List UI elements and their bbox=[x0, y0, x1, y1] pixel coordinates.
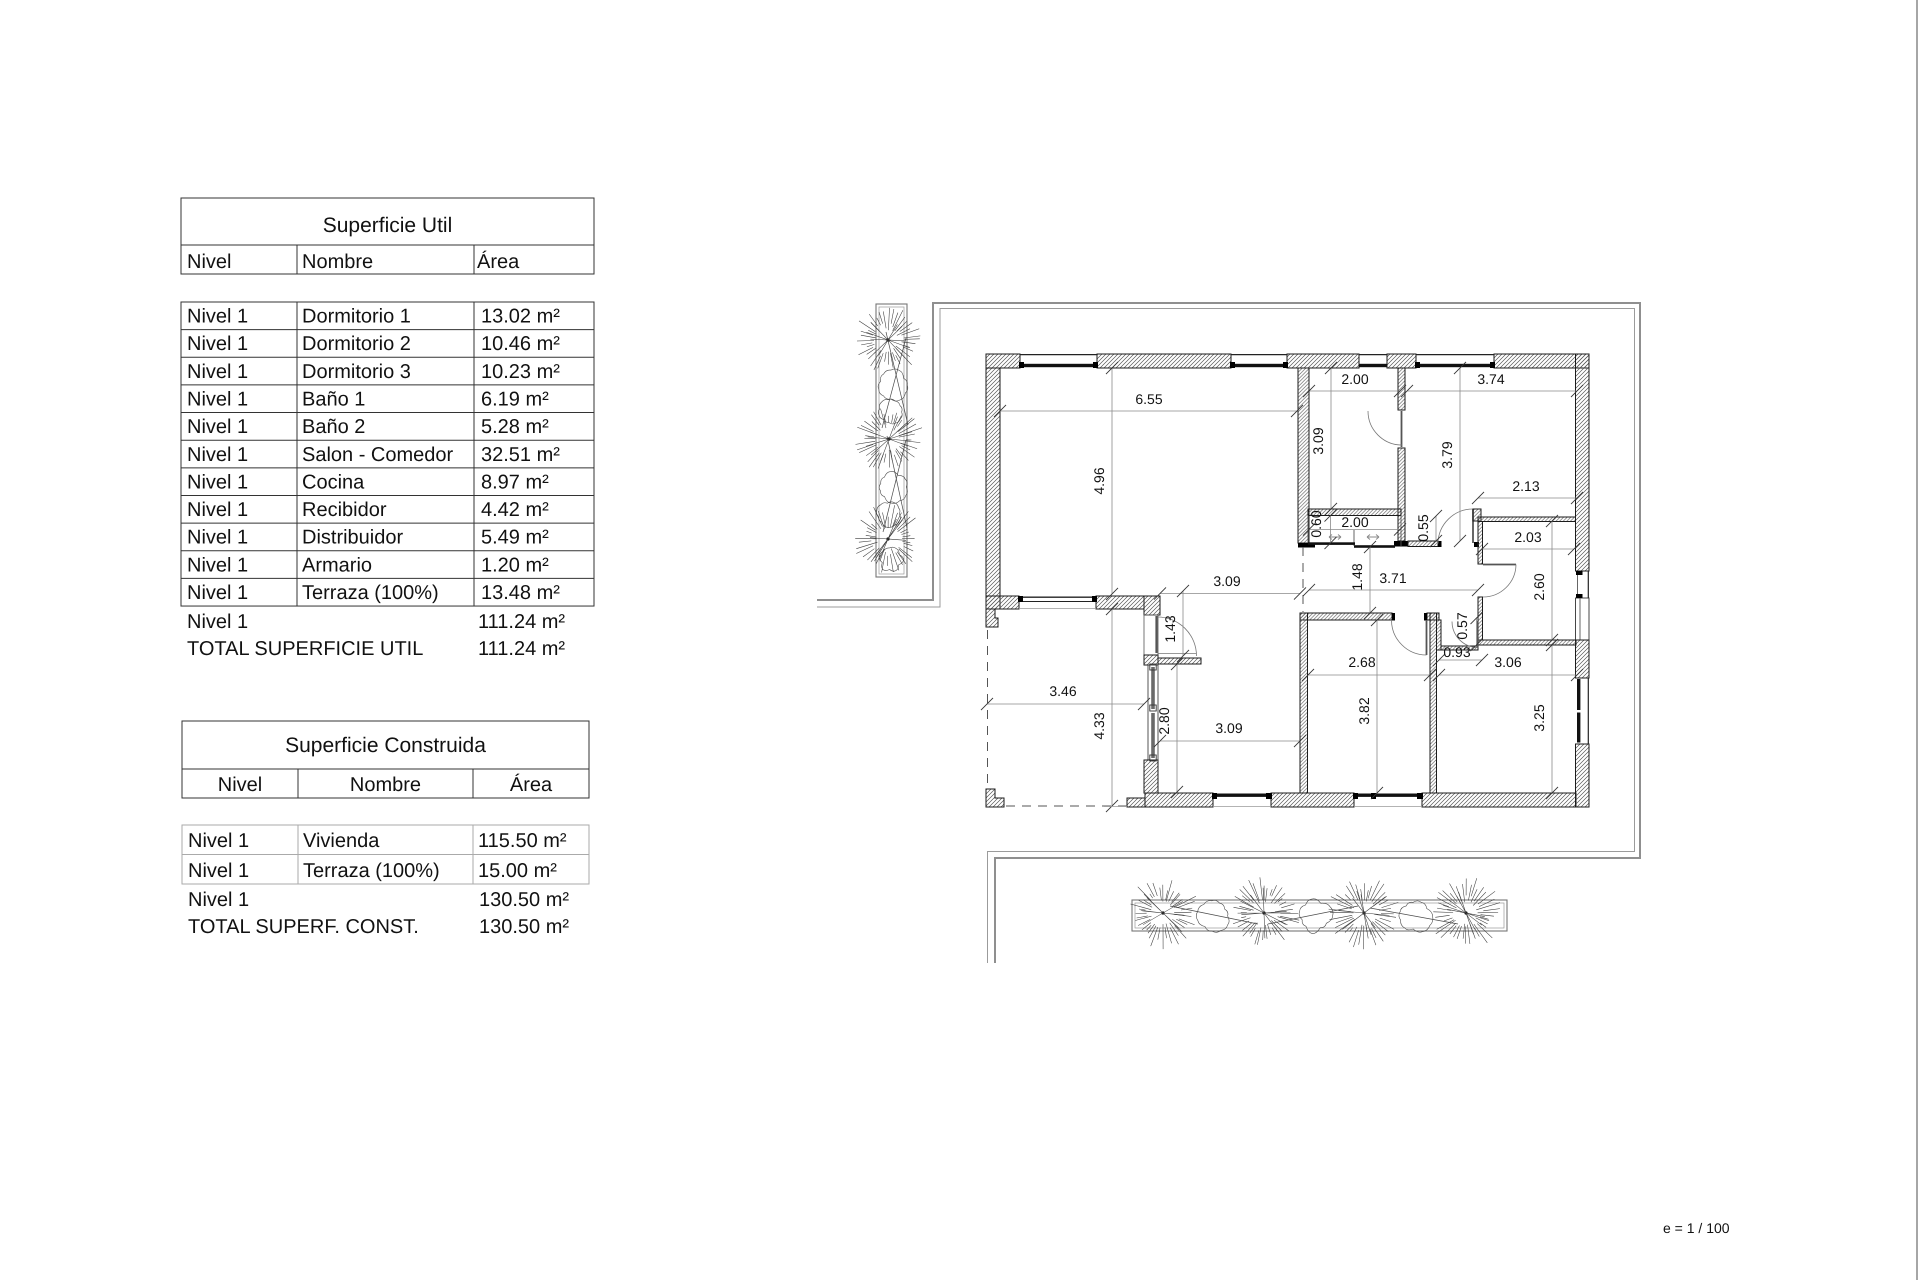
svg-text:Dormitorio 3: Dormitorio 3 bbox=[302, 361, 411, 383]
svg-text:32.51 m²: 32.51 m² bbox=[481, 444, 560, 466]
svg-text:Nivel 1: Nivel 1 bbox=[187, 471, 248, 493]
svg-text:5.49 m²: 5.49 m² bbox=[481, 527, 549, 549]
svg-text:e = 1 / 100: e = 1 / 100 bbox=[1663, 1220, 1730, 1236]
svg-text:2.80: 2.80 bbox=[1156, 707, 1172, 734]
svg-text:6.55: 6.55 bbox=[1135, 391, 1162, 407]
svg-text:3.46: 3.46 bbox=[1049, 683, 1076, 699]
svg-text:0.57: 0.57 bbox=[1454, 612, 1470, 639]
svg-text:2.68: 2.68 bbox=[1348, 654, 1375, 670]
svg-text:Nivel 1: Nivel 1 bbox=[187, 499, 248, 521]
svg-text:Nivel 1: Nivel 1 bbox=[187, 527, 248, 549]
svg-text:Dormitorio 1: Dormitorio 1 bbox=[302, 306, 411, 328]
svg-text:13.02 m²: 13.02 m² bbox=[481, 306, 560, 328]
svg-text:Baño 1: Baño 1 bbox=[302, 389, 365, 411]
svg-text:3.09: 3.09 bbox=[1215, 720, 1242, 736]
svg-text:Nivel 1: Nivel 1 bbox=[187, 416, 248, 438]
svg-text:2.60: 2.60 bbox=[1531, 573, 1547, 600]
svg-text:Nivel 1: Nivel 1 bbox=[188, 860, 249, 882]
svg-text:3.79: 3.79 bbox=[1439, 441, 1455, 468]
svg-text:2.13: 2.13 bbox=[1512, 478, 1539, 494]
svg-text:10.23 m²: 10.23 m² bbox=[481, 361, 560, 383]
svg-text:8.97 m²: 8.97 m² bbox=[481, 471, 549, 493]
svg-text:Nivel 1: Nivel 1 bbox=[187, 444, 248, 466]
svg-text:Nivel 1: Nivel 1 bbox=[187, 333, 248, 355]
svg-text:2.03: 2.03 bbox=[1514, 529, 1541, 545]
svg-text:13.48 m²: 13.48 m² bbox=[481, 582, 560, 604]
svg-text:3.25: 3.25 bbox=[1531, 704, 1547, 731]
svg-text:1.43: 1.43 bbox=[1162, 615, 1178, 642]
svg-text:5.28 m²: 5.28 m² bbox=[481, 416, 549, 438]
svg-text:Vivienda: Vivienda bbox=[303, 830, 380, 852]
svg-text:Nivel 1: Nivel 1 bbox=[187, 389, 248, 411]
svg-text:6.19 m²: 6.19 m² bbox=[481, 389, 549, 411]
svg-text:Área: Área bbox=[477, 250, 520, 273]
svg-text:0.60: 0.60 bbox=[1308, 510, 1324, 537]
svg-text:3.74: 3.74 bbox=[1477, 371, 1504, 387]
svg-text:TOTAL SUPERFICIE UTIL: TOTAL SUPERFICIE UTIL bbox=[187, 638, 423, 660]
svg-text:2.00: 2.00 bbox=[1341, 514, 1368, 530]
svg-text:Área: Área bbox=[510, 773, 553, 796]
svg-text:Nivel 1: Nivel 1 bbox=[187, 361, 248, 383]
svg-text:10.46 m²: 10.46 m² bbox=[481, 333, 560, 355]
svg-text:Nivel 1: Nivel 1 bbox=[187, 554, 248, 576]
svg-text:Distribuidor: Distribuidor bbox=[302, 527, 403, 549]
svg-text:Salon - Comedor: Salon - Comedor bbox=[302, 444, 454, 466]
svg-text:TOTAL SUPERF. CONST.: TOTAL SUPERF. CONST. bbox=[188, 916, 419, 938]
svg-text:Superficie Construida: Superficie Construida bbox=[285, 734, 486, 757]
svg-text:2.00: 2.00 bbox=[1341, 371, 1368, 387]
svg-text:3.06: 3.06 bbox=[1494, 654, 1521, 670]
svg-text:4.96: 4.96 bbox=[1091, 467, 1107, 494]
svg-text:115.50 m²: 115.50 m² bbox=[478, 830, 567, 852]
svg-text:Nivel 1: Nivel 1 bbox=[188, 830, 249, 852]
svg-text:3.09: 3.09 bbox=[1213, 573, 1240, 589]
svg-text:3.82: 3.82 bbox=[1356, 697, 1372, 724]
svg-text:15.00 m²: 15.00 m² bbox=[478, 860, 557, 882]
svg-text:1.20 m²: 1.20 m² bbox=[481, 554, 549, 576]
svg-text:3.09: 3.09 bbox=[1310, 427, 1326, 454]
svg-text:3.71: 3.71 bbox=[1379, 570, 1406, 586]
svg-text:Armario: Armario bbox=[302, 554, 372, 576]
svg-text:111.24 m²: 111.24 m² bbox=[478, 638, 565, 660]
svg-text:Terraza (100%): Terraza (100%) bbox=[303, 860, 440, 882]
svg-text:Nombre: Nombre bbox=[302, 251, 373, 273]
svg-text:1.48: 1.48 bbox=[1349, 563, 1365, 590]
svg-text:Dormitorio 2: Dormitorio 2 bbox=[302, 333, 411, 355]
svg-text:111.24 m²: 111.24 m² bbox=[478, 611, 565, 633]
svg-text:4.33: 4.33 bbox=[1091, 712, 1107, 739]
svg-text:Nivel 1: Nivel 1 bbox=[187, 582, 248, 604]
svg-text:4.42 m²: 4.42 m² bbox=[481, 499, 549, 521]
svg-text:Nombre: Nombre bbox=[350, 774, 421, 796]
svg-text:Nivel: Nivel bbox=[218, 774, 262, 796]
svg-text:Nivel 1: Nivel 1 bbox=[188, 889, 249, 911]
svg-text:Recibidor: Recibidor bbox=[302, 499, 387, 521]
svg-text:Baño 2: Baño 2 bbox=[302, 416, 365, 438]
svg-text:Cocina: Cocina bbox=[302, 471, 365, 493]
svg-text:130.50 m²: 130.50 m² bbox=[479, 889, 569, 911]
svg-text:Nivel 1: Nivel 1 bbox=[187, 611, 248, 633]
svg-text:0.55: 0.55 bbox=[1415, 514, 1431, 541]
svg-text:0.93: 0.93 bbox=[1443, 644, 1470, 660]
svg-text:Nivel: Nivel bbox=[187, 251, 231, 273]
svg-text:130.50 m²: 130.50 m² bbox=[479, 916, 569, 938]
svg-text:Superficie Util: Superficie Util bbox=[323, 214, 453, 237]
svg-text:Terraza (100%): Terraza (100%) bbox=[302, 582, 439, 604]
svg-text:Nivel 1: Nivel 1 bbox=[187, 306, 248, 328]
